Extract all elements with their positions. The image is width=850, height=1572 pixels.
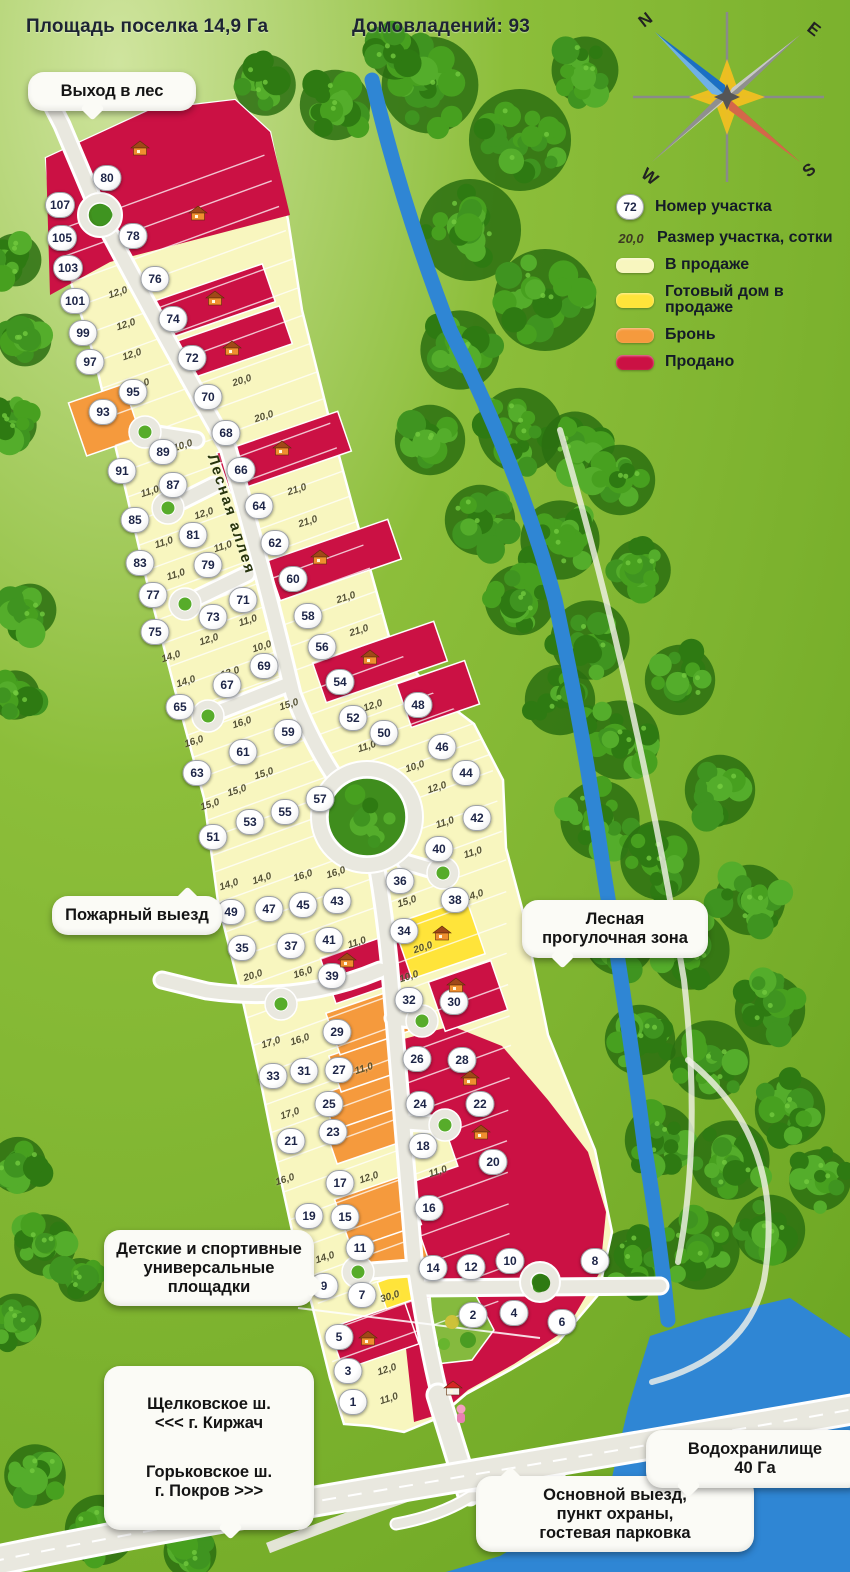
- guard-office-icon: [443, 1380, 463, 1396]
- plot-badge-61: 61: [229, 739, 258, 765]
- plot-badge-68: 68: [212, 420, 241, 446]
- plot-badge-14: 14: [419, 1255, 448, 1281]
- plot-badge-1: 1: [339, 1389, 368, 1415]
- plot-badge-77: 77: [139, 582, 168, 608]
- plot-badge-73: 73: [199, 604, 228, 630]
- legend-item-reserved: Бронь: [616, 327, 848, 344]
- cottage-icon: [337, 952, 357, 968]
- cottage-icon: [460, 1070, 480, 1086]
- plot-badge-43: 43: [323, 888, 352, 914]
- plot-badge-22: 22: [466, 1091, 495, 1117]
- plot-badge-48: 48: [404, 692, 433, 718]
- plot-badge-25: 25: [315, 1091, 344, 1117]
- plot-badge-54: 54: [326, 669, 355, 695]
- cottage-icon: [446, 977, 466, 993]
- plot-badge-34: 34: [390, 918, 419, 944]
- plot-badge-17: 17: [326, 1170, 355, 1196]
- plot-badge-69: 69: [250, 653, 279, 679]
- plot-badge-87: 87: [159, 472, 188, 498]
- plot-badge-37: 37: [277, 933, 306, 959]
- plot-badge-16: 16: [415, 1195, 444, 1221]
- compass-rose: N E W S: [622, 4, 834, 190]
- plot-badge-19: 19: [295, 1203, 324, 1229]
- plot-badge-18: 18: [409, 1133, 438, 1159]
- plot-badge-20: 20: [479, 1149, 508, 1175]
- plot-badge-91: 91: [108, 458, 137, 484]
- plot-badge-60: 60: [279, 566, 308, 592]
- plot-badge-59: 59: [274, 719, 303, 745]
- plot-badge-78: 78: [119, 223, 148, 249]
- highway-direction-2: Горьковское ш. г. Покров >>>: [114, 1463, 304, 1501]
- reserved-swatch: [616, 328, 654, 343]
- plot-badge-41: 41: [315, 927, 344, 953]
- plot-badge-23: 23: [319, 1119, 348, 1145]
- plot-badge-53: 53: [236, 809, 265, 835]
- cottage-icon: [310, 549, 330, 565]
- plot-badge-24: 24: [406, 1091, 435, 1117]
- households-count-label: Домовладений: 93: [352, 16, 530, 38]
- plot-badge-105: 105: [47, 225, 77, 251]
- person-figure: [457, 1405, 466, 1414]
- cottage-icon: [432, 925, 452, 941]
- plot-badge-21: 21: [277, 1128, 306, 1154]
- plot-badge-51: 51: [199, 824, 228, 850]
- callout-playgrounds: Детские и спортивные универсальные площа…: [104, 1230, 314, 1306]
- plot-badge-72: 72: [178, 345, 207, 371]
- plot-badge-93: 93: [89, 399, 118, 425]
- plot-badge-15: 15: [331, 1204, 360, 1230]
- legend-item-sale: В продаже: [616, 257, 848, 274]
- settlement-map: Площадь поселка 14,9 Га Домовладений: 93…: [0, 0, 850, 1572]
- cottage-icon: [205, 290, 225, 306]
- plot-badge-52: 52: [339, 705, 368, 731]
- plot-badge-4: 4: [500, 1300, 529, 1326]
- ready-swatch: [616, 293, 654, 308]
- plot-badge-40: 40: [425, 836, 454, 862]
- plot-badge-47: 47: [255, 896, 284, 922]
- plot-badge-103: 103: [53, 255, 83, 281]
- legend-number-badge: 72: [616, 194, 644, 220]
- plot-badge-101: 101: [60, 288, 90, 314]
- callout-forest-walk-zone: Лесная прогулочная зона: [522, 900, 708, 958]
- plot-badge-89: 89: [149, 439, 178, 465]
- plot-badge-31: 31: [290, 1058, 319, 1084]
- plot-badge-76: 76: [141, 266, 170, 292]
- plot-badge-26: 26: [403, 1046, 432, 1072]
- legend-size-sample: 20,0: [616, 231, 646, 246]
- legend-item-sold: Продано: [616, 354, 848, 371]
- plot-badge-67: 67: [213, 672, 242, 698]
- plot-badge-65: 65: [166, 694, 195, 720]
- plot-badge-10: 10: [496, 1248, 525, 1274]
- plot-badge-64: 64: [245, 493, 274, 519]
- plot-badge-35: 35: [228, 935, 257, 961]
- plot-badge-8: 8: [581, 1248, 610, 1274]
- plot-badge-55: 55: [271, 799, 300, 825]
- callout-highways: Щелковское ш. <<< г. Киржач Горьковское …: [104, 1366, 314, 1530]
- plot-badge-66: 66: [227, 457, 256, 483]
- compass-w: W: [638, 164, 663, 189]
- plot-badge-45: 45: [289, 892, 318, 918]
- cottage-icon: [358, 1330, 378, 1346]
- plot-badge-38: 38: [441, 887, 470, 913]
- plot-badge-95: 95: [119, 379, 148, 405]
- plot-badge-46: 46: [428, 734, 457, 760]
- plot-badge-7: 7: [348, 1282, 377, 1308]
- plot-badge-107: 107: [45, 192, 75, 218]
- plot-badge-63: 63: [183, 760, 212, 786]
- plot-badge-70: 70: [194, 384, 223, 410]
- plot-badge-32: 32: [395, 987, 424, 1013]
- compass-s: S: [799, 159, 820, 181]
- compass-n: N: [635, 9, 656, 32]
- plot-badge-5: 5: [325, 1324, 354, 1350]
- plot-badge-27: 27: [325, 1057, 354, 1083]
- plot-badge-2: 2: [459, 1302, 488, 1328]
- legend-plot-size: 20,0 Размер участка, сотки: [616, 230, 848, 247]
- plot-badge-44: 44: [452, 760, 481, 786]
- plot-badge-79: 79: [194, 552, 223, 578]
- plot-badge-50: 50: [370, 720, 399, 746]
- plot-badge-85: 85: [121, 507, 150, 533]
- cottage-icon: [471, 1124, 491, 1140]
- plot-badge-42: 42: [463, 805, 492, 831]
- cottage-icon: [188, 205, 208, 221]
- sold-swatch: [616, 355, 654, 370]
- plot-badge-99: 99: [69, 320, 98, 346]
- callout-fire-exit: Пожарный выезд: [52, 896, 222, 935]
- plot-badge-36: 36: [386, 868, 415, 894]
- legend-plot-number: 72 Номер участка: [616, 194, 848, 220]
- plot-badge-56: 56: [308, 634, 337, 660]
- plot-badge-6: 6: [548, 1309, 577, 1335]
- legend-item-ready: Готовый дом в продаже: [616, 284, 848, 318]
- plot-badge-29: 29: [323, 1019, 352, 1045]
- plot-badge-74: 74: [159, 306, 188, 332]
- plot-badge-3: 3: [334, 1358, 363, 1384]
- highway-direction-1: Щелковское ш. <<< г. Киржач: [114, 1395, 304, 1433]
- plot-badge-75: 75: [141, 619, 170, 645]
- compass-e: E: [804, 18, 825, 40]
- plot-badge-57: 57: [306, 786, 335, 812]
- plot-badge-12: 12: [457, 1254, 486, 1280]
- callout-forest-exit: Выход в лес: [28, 72, 196, 111]
- plot-badge-81: 81: [179, 522, 208, 548]
- sale-swatch: [616, 258, 654, 273]
- plot-badge-83: 83: [126, 550, 155, 576]
- cottage-icon: [272, 440, 292, 456]
- plot-badge-62: 62: [261, 530, 290, 556]
- legend: 72 Номер участка 20,0 Размер участка, со…: [616, 194, 848, 381]
- plot-badge-97: 97: [76, 349, 105, 375]
- settlement-area-label: Площадь поселка 14,9 Га: [26, 16, 268, 38]
- plot-badge-11: 11: [346, 1235, 375, 1261]
- plot-badge-58: 58: [294, 603, 323, 629]
- cottage-icon: [222, 340, 242, 356]
- cottage-icon: [360, 649, 380, 665]
- plot-badge-80: 80: [93, 165, 122, 191]
- cottage-icon: [130, 140, 150, 156]
- plot-badge-71: 71: [229, 587, 258, 613]
- callout-reservoir: Водохранилище 40 Га: [646, 1430, 850, 1488]
- plot-badge-33: 33: [259, 1063, 288, 1089]
